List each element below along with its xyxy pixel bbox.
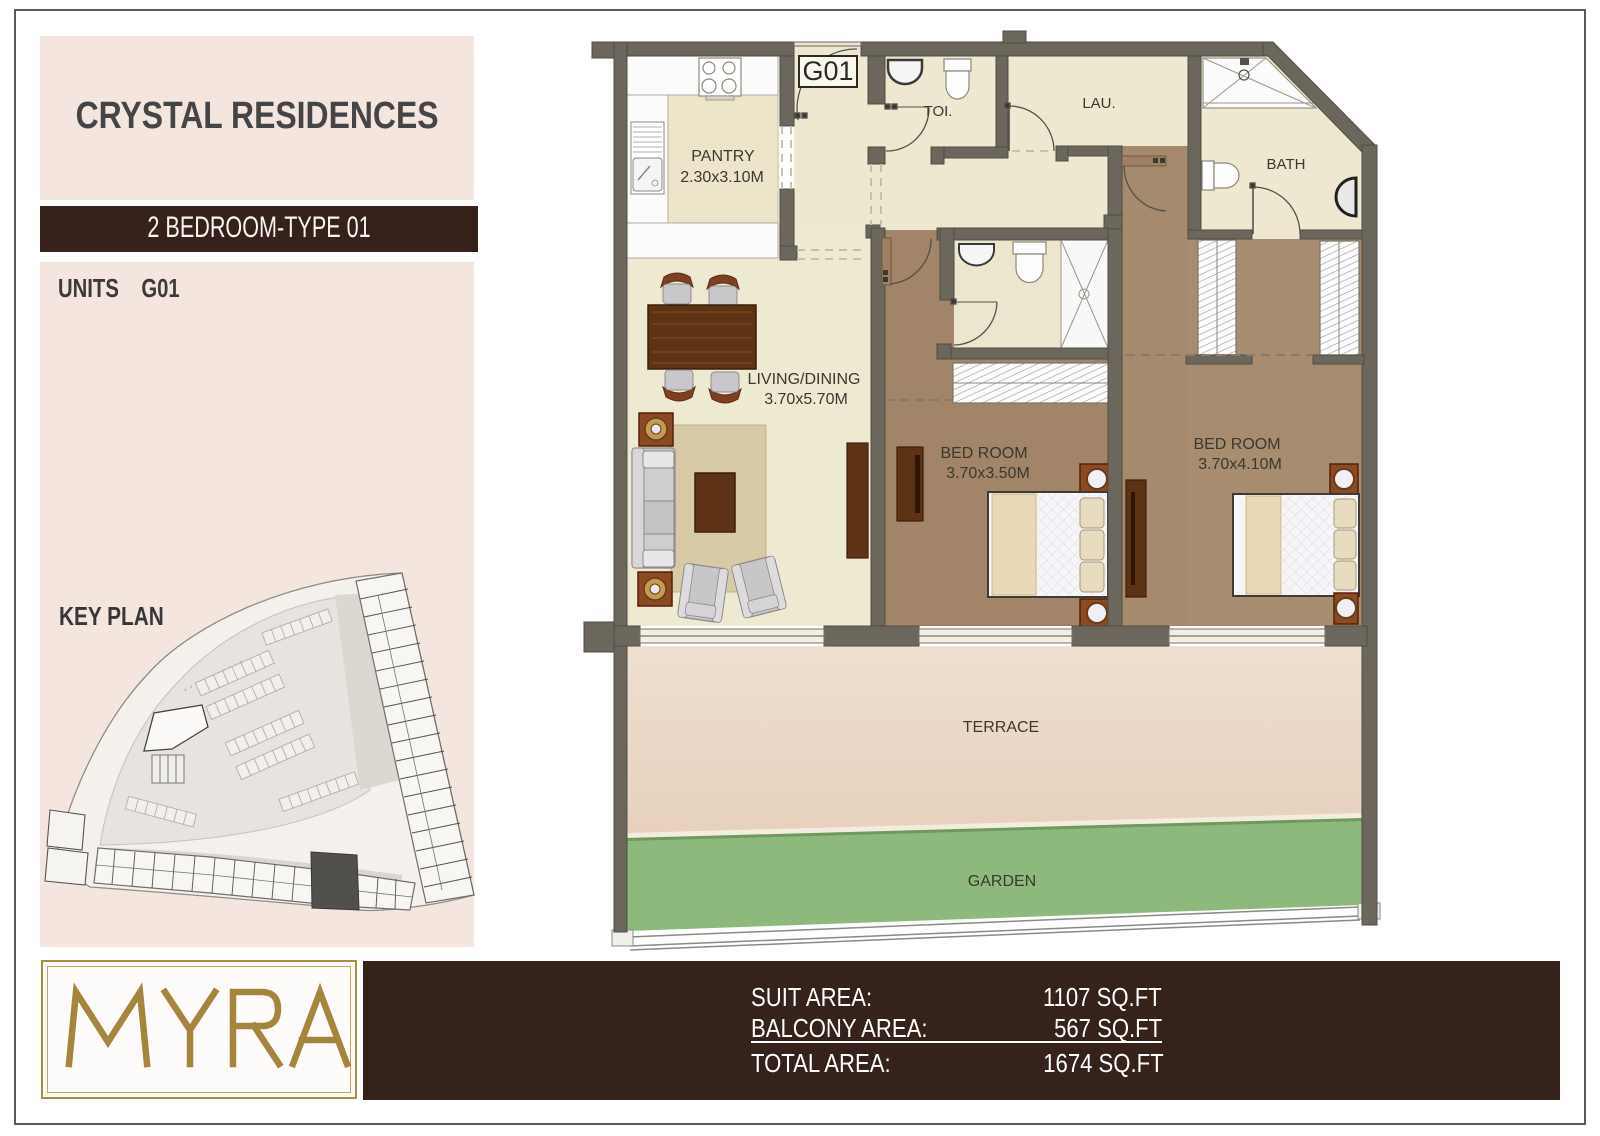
svg-text:3.70x4.10M: 3.70x4.10M — [1198, 456, 1282, 473]
svg-text:3.70x5.70M: 3.70x5.70M — [764, 391, 848, 408]
svg-text:LIVING/DINING: LIVING/DINING — [748, 371, 861, 388]
svg-text:TOI.: TOI. — [924, 103, 953, 120]
svg-text:2.30x3.10M: 2.30x3.10M — [680, 169, 764, 186]
svg-text:LAU.: LAU. — [1082, 95, 1115, 112]
svg-text:3.70x3.50M: 3.70x3.50M — [946, 465, 1030, 482]
svg-text:GARDEN: GARDEN — [968, 873, 1036, 890]
svg-text:BED ROOM: BED ROOM — [1193, 436, 1280, 453]
svg-text:BED ROOM: BED ROOM — [940, 445, 1027, 462]
svg-text:TERRACE: TERRACE — [963, 719, 1039, 736]
svg-text:PANTRY: PANTRY — [691, 148, 755, 165]
svg-text:BATH: BATH — [1267, 156, 1306, 173]
svg-text:G01: G01 — [802, 56, 853, 86]
